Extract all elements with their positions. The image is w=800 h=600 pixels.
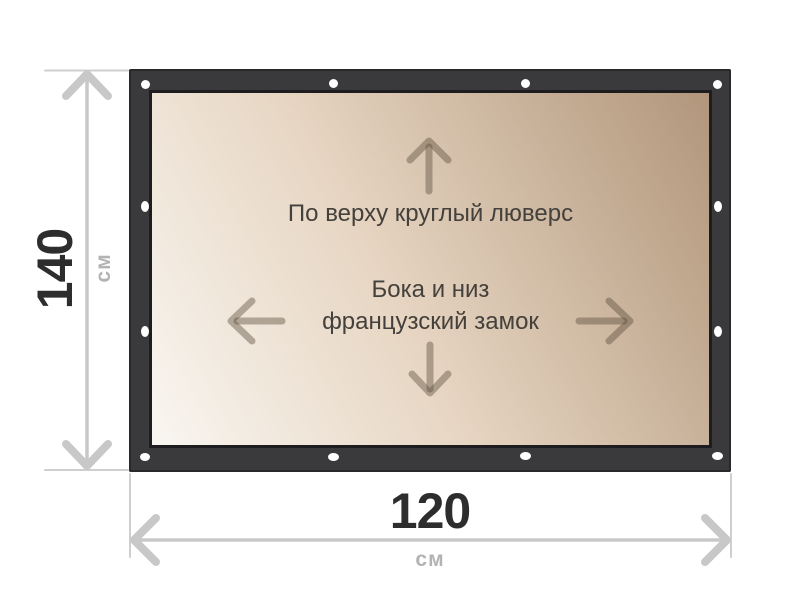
grommet-hole: [520, 452, 531, 460]
grommet-hole: [521, 79, 530, 88]
width-unit-label: см: [380, 548, 480, 572]
down-arrowhead-icon: [66, 444, 108, 466]
width-value-label: 120: [330, 484, 530, 538]
grommet-hole: [712, 452, 723, 460]
grommet-hole: [714, 201, 722, 212]
up-arrowhead-icon: [66, 74, 108, 96]
grommet-hole: [713, 80, 722, 89]
height-unit: см: [92, 253, 116, 282]
width-value: 120: [390, 482, 470, 540]
product-diagram: По верху круглый люверс Бока и низ франц…: [0, 0, 800, 600]
grommet-hole: [141, 326, 149, 337]
height-unit-label: см: [74, 238, 134, 298]
grommet-hole: [714, 326, 722, 337]
left-arrowhead-icon: [134, 518, 156, 562]
grommet-hole: [140, 453, 150, 461]
grommet-hole: [141, 80, 150, 89]
width-unit: см: [415, 548, 444, 572]
top-note: По верху круглый люверс: [152, 198, 709, 230]
center-note-line1: Бока и низ: [152, 274, 709, 306]
right-arrowhead-icon: [705, 518, 727, 562]
grommet-hole: [329, 79, 338, 88]
center-note-line2: французский замок: [152, 306, 709, 338]
grommet-hole: [328, 453, 339, 461]
banner-canvas: [152, 93, 709, 445]
center-note: Бока и низ французский замок: [152, 274, 709, 338]
grommet-hole: [141, 201, 149, 212]
